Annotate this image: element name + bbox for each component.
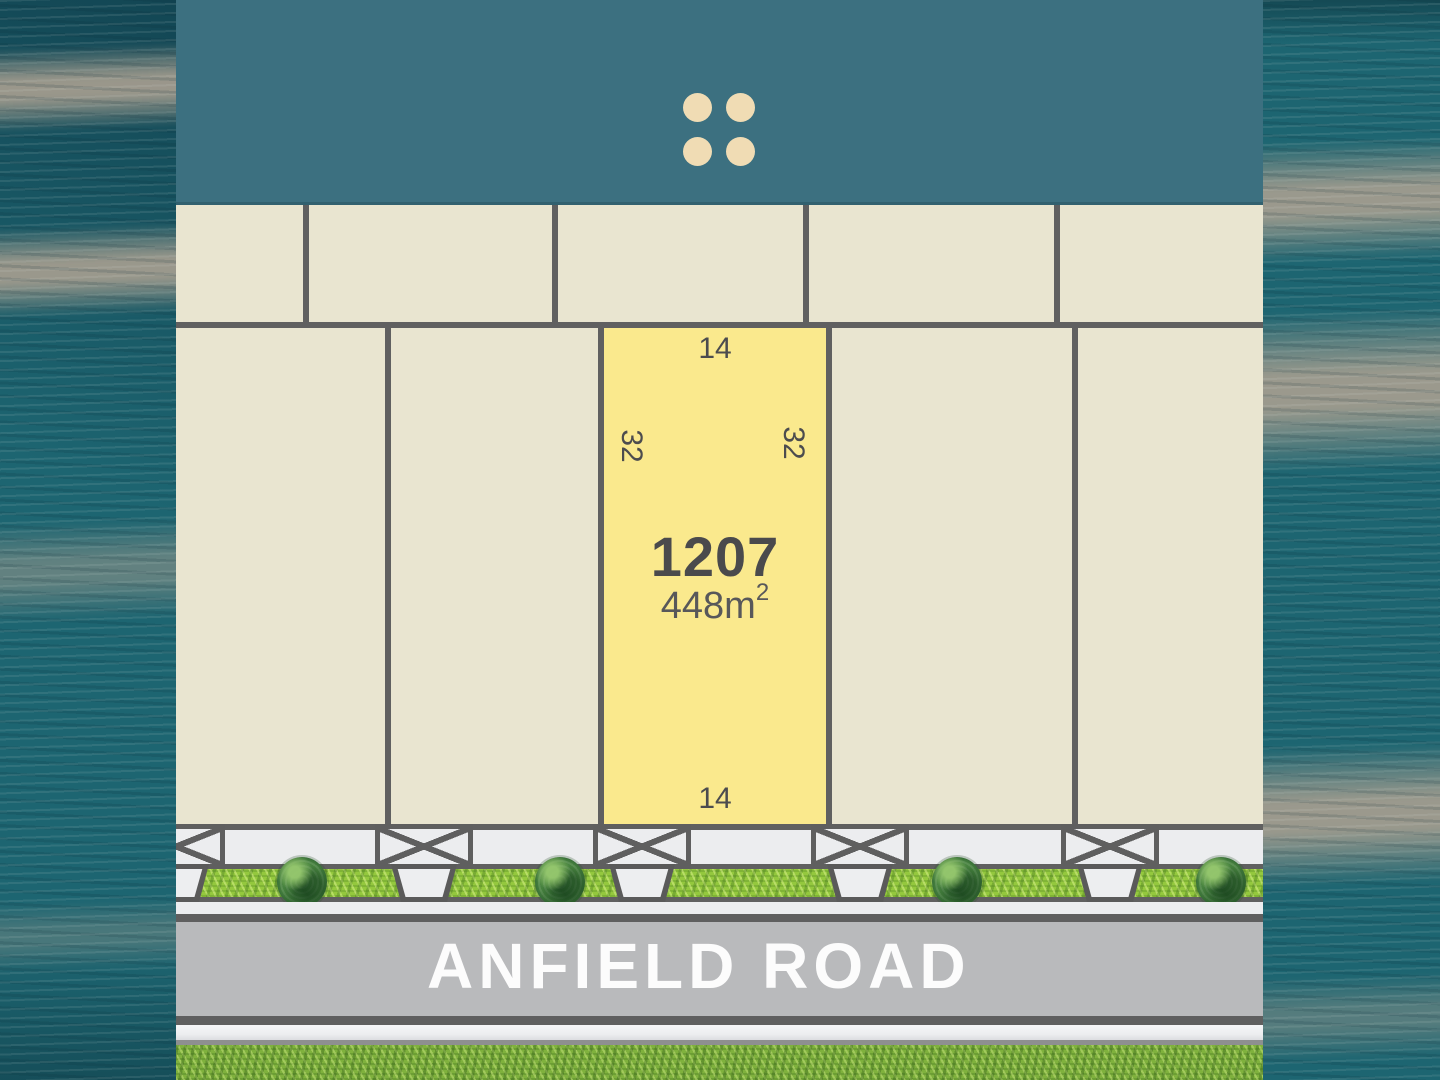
lot-boundary bbox=[803, 205, 809, 322]
tree-icon bbox=[932, 857, 982, 907]
kerbside-footpath bbox=[176, 902, 1263, 914]
tree-icon bbox=[535, 857, 585, 907]
crossover-marker bbox=[593, 824, 691, 869]
lot-boundary bbox=[303, 205, 309, 322]
front-lawn bbox=[176, 1045, 1263, 1080]
dot bbox=[726, 137, 755, 166]
featured-lot: 14 32 32 1207 448m2 14 bbox=[598, 322, 832, 830]
dimension-bottom: 14 bbox=[604, 782, 826, 816]
lot-row-back bbox=[176, 205, 1263, 322]
estate-plan: 14 32 32 1207 448m2 14 ANFIELD ROAD bbox=[176, 0, 1263, 1080]
driveway bbox=[609, 864, 675, 902]
tree-icon bbox=[277, 857, 327, 907]
dimension-top: 14 bbox=[604, 332, 826, 366]
road-edge-line bbox=[176, 1016, 1263, 1025]
tree-icon bbox=[1196, 857, 1246, 907]
road-name-label: ANFIELD ROAD bbox=[427, 934, 936, 998]
crossover-marker bbox=[1061, 824, 1159, 869]
driveway bbox=[391, 864, 457, 902]
brand-dots-icon bbox=[683, 93, 755, 166]
lot-boundary bbox=[385, 328, 391, 824]
water-backdrop-left bbox=[0, 0, 176, 1080]
lot-number: 1207 bbox=[604, 529, 826, 585]
dimension-left: 32 bbox=[614, 426, 648, 466]
driveway bbox=[1077, 864, 1143, 902]
water-ripples bbox=[0, 0, 176, 1080]
crossover-marker bbox=[811, 824, 909, 869]
lot-boundary bbox=[1054, 205, 1060, 322]
water-ripples bbox=[1263, 0, 1440, 1080]
lot-boundary bbox=[552, 205, 558, 322]
lot-area-exponent: 2 bbox=[756, 579, 769, 606]
lot-area-value: 448m bbox=[661, 585, 756, 627]
road-edge-line bbox=[176, 914, 1263, 922]
dot bbox=[726, 93, 755, 122]
driveway bbox=[827, 864, 893, 902]
dimension-right: 32 bbox=[776, 423, 810, 463]
lot-boundary bbox=[1072, 328, 1078, 824]
dot bbox=[683, 137, 712, 166]
lot-area: 448m2 bbox=[604, 584, 826, 628]
dot bbox=[683, 93, 712, 122]
water-backdrop-right bbox=[1263, 0, 1440, 1080]
lot-plan-image: { "brand": { "logo_icon": "four-dots-gri… bbox=[0, 0, 1440, 1080]
crossover-marker bbox=[176, 824, 225, 869]
brand-banner bbox=[176, 0, 1263, 205]
kerb bbox=[176, 1025, 1263, 1040]
crossover-marker bbox=[375, 824, 473, 869]
